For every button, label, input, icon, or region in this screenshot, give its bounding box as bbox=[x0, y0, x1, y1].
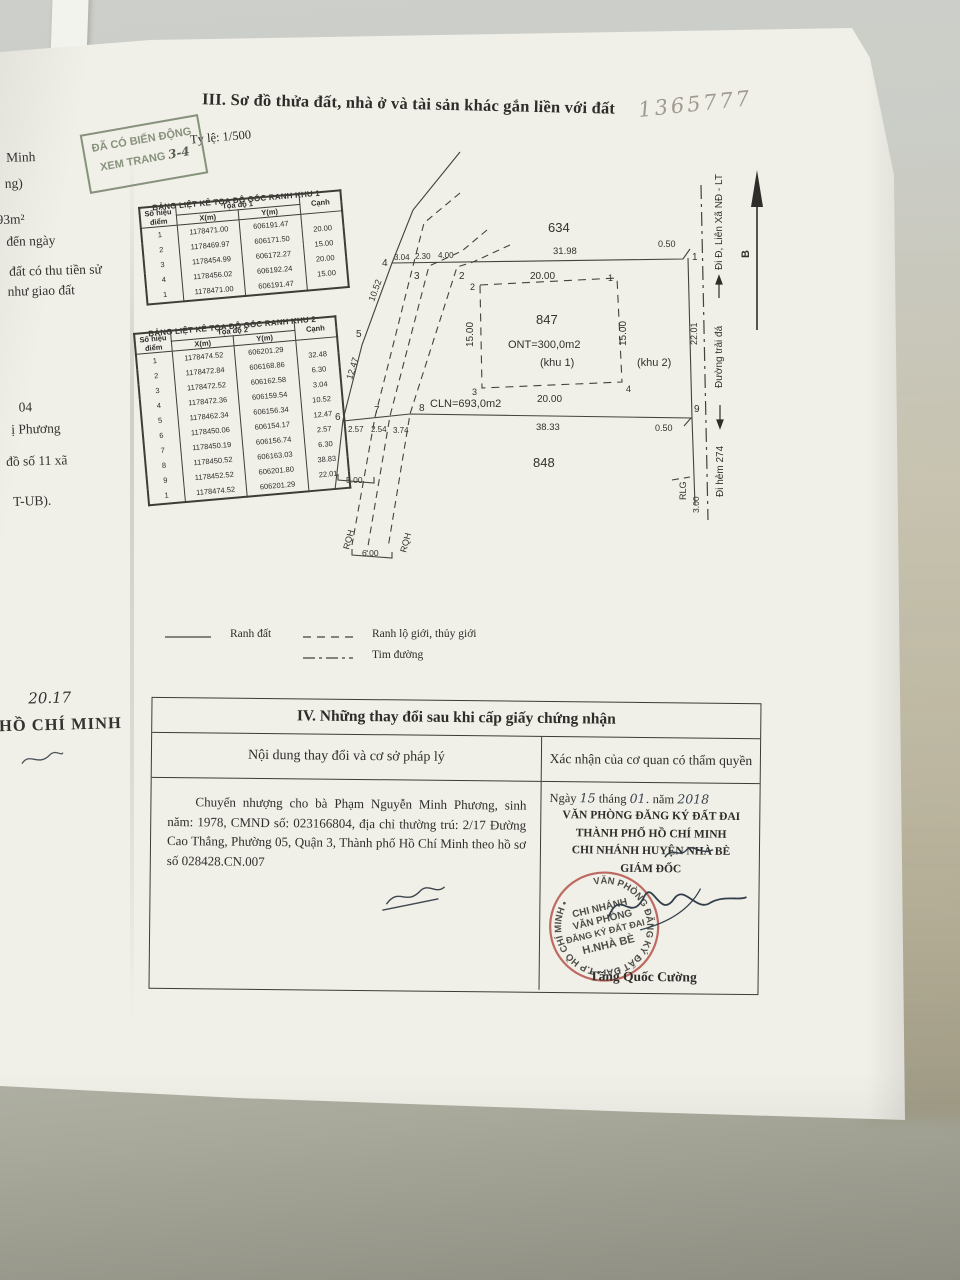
dim-2201: 22.01 bbox=[689, 322, 699, 345]
dim-500: 5.00 bbox=[346, 475, 363, 485]
dim-1052: 10.52 bbox=[366, 278, 383, 303]
margin-fragment: Minh bbox=[6, 149, 36, 166]
margin-fragment: ị Phương bbox=[11, 421, 61, 438]
margin-fragment: 693m² bbox=[0, 211, 25, 228]
dim-400: 4.00 bbox=[438, 251, 454, 260]
dim-050-top: 0.50 bbox=[658, 239, 676, 249]
margin-fragment: 04 bbox=[18, 399, 32, 415]
date-line: Ngày 15 tháng 01. năm 2018 bbox=[549, 790, 753, 808]
inner-point-2: 2 bbox=[470, 282, 475, 292]
inner-plot-dashed-rect bbox=[480, 278, 622, 388]
legend-dashed-line bbox=[303, 634, 353, 640]
khu2-label: (khu 2) bbox=[637, 357, 671, 369]
office-line1: VĂN PHÒNG ĐĂNG KÝ ĐẤT ĐAI bbox=[549, 808, 753, 826]
inner-point-1: 1 bbox=[608, 273, 613, 283]
change-entry-cell: Chuyển nhượng cho bà Phạm Nguyễn Minh Ph… bbox=[150, 778, 541, 990]
dim-15-left: 15.00 bbox=[465, 322, 476, 347]
section4-changes-table: IV. Những thay đổi sau khi cấp giấy chứn… bbox=[148, 697, 761, 995]
road-corridor-dashed-lines bbox=[352, 193, 690, 552]
legend-dashdot-line bbox=[303, 655, 353, 661]
paper-crease bbox=[130, 150, 134, 1020]
parcel-848: 848 bbox=[533, 455, 555, 470]
dim-20-top: 20.00 bbox=[530, 271, 555, 282]
road-hem274-label: Đi hẻm 274 bbox=[715, 445, 726, 497]
section4-header-row: Nội dung thay đổi và cơ sở pháp lý Xác n… bbox=[152, 733, 760, 784]
margin-fragment: T-UB). bbox=[13, 493, 52, 510]
ont-area-label: ONT=300,0m2 bbox=[508, 339, 580, 351]
signer-name: Tăng Quốc Cường bbox=[590, 968, 697, 985]
point-6: 6 bbox=[335, 412, 341, 423]
coordinate-table-khu1: Số hiệu điểm Tọa độ 1 Cạnh X(m) Y(m) 111… bbox=[138, 189, 350, 305]
dim-20-bottom: 20.00 bbox=[537, 394, 562, 405]
rlg-label: RLG bbox=[678, 481, 688, 500]
dim-304: 3.04 bbox=[394, 253, 410, 262]
road-centerline bbox=[701, 185, 708, 520]
margin-signature-squiggle bbox=[20, 747, 65, 770]
margin-fragment: đồ số 11 xã bbox=[6, 452, 68, 470]
handwritten-day: 15 bbox=[580, 790, 596, 805]
legend: Ranh đất Ranh lộ giới, thủy giới Tim đườ… bbox=[160, 628, 620, 674]
giamdoc-initial-signature bbox=[663, 843, 723, 864]
point-3: 3 bbox=[414, 271, 420, 282]
road-lienxa-label: Đi Đ, Liên Xã NĐ - LT bbox=[714, 174, 725, 270]
handwritten-year: 2018 bbox=[677, 791, 709, 806]
dim-600: 6.00 bbox=[362, 548, 379, 558]
dim-374: 3.74 bbox=[393, 426, 409, 435]
road-traida-label: Đường trải đá bbox=[714, 325, 725, 388]
margin-city-fragment: HỒ CHÍ MINH bbox=[0, 713, 122, 736]
dim-15-right: 15.00 bbox=[618, 321, 629, 346]
photo-background: III. Sơ đồ thửa đất, nhà ở và tài sản kh… bbox=[0, 0, 960, 1280]
north-arrow-icon: B bbox=[740, 170, 763, 330]
khu1-label: (khu 1) bbox=[540, 357, 574, 369]
parcel-634: 634 bbox=[548, 220, 570, 235]
office-line2: THÀNH PHỐ HỒ CHÍ MINH bbox=[549, 826, 753, 844]
authority-cell: Ngày 15 tháng 01. năm 2018 VĂN PHÒNG ĐĂN… bbox=[538, 782, 759, 992]
director-signature bbox=[600, 878, 751, 940]
margin-handwritten-year: 20.17 bbox=[28, 688, 71, 707]
parcel-847: 847 bbox=[536, 312, 558, 327]
boundary-lines bbox=[335, 152, 695, 558]
handwritten-page-ref: 3-4 bbox=[167, 144, 191, 162]
point-2: 2 bbox=[459, 271, 465, 282]
rqh-label-1: RQH bbox=[341, 529, 356, 551]
cln-area-label: CLN=693,0m2 bbox=[430, 398, 501, 410]
legend-tim-duong: Tim đường bbox=[372, 649, 423, 661]
dim-050-bottom: 0.50 bbox=[655, 423, 673, 433]
margin-fragment: đến ngày bbox=[6, 233, 56, 250]
entry-signature-squiggle bbox=[380, 880, 450, 915]
point-4: 4 bbox=[382, 258, 388, 269]
point-9: 9 bbox=[694, 404, 700, 415]
inner-point-3: 3 bbox=[472, 387, 477, 397]
legend-ranh-dat: Ranh đất bbox=[230, 628, 271, 640]
margin-fragment: đất có thu tiền sử bbox=[9, 261, 102, 279]
margin-fragment: ng) bbox=[5, 175, 23, 191]
transfer-entry-text: Chuyển nhượng cho bà Phạm Nguyễn Minh Ph… bbox=[167, 792, 527, 874]
rqh-label-2: RQH bbox=[398, 532, 413, 554]
land-plot-diagram: B 634 847 848 ONT=300,0m2 (khu 1) (khu 2… bbox=[330, 140, 790, 585]
inner-point-4: 4 bbox=[626, 384, 631, 394]
dim-257: 2.57 bbox=[348, 425, 364, 434]
coordinate-table-khu2: Số hiệu điểm Tọa độ 2 Cạnh X(m) Y(m) 111… bbox=[133, 315, 351, 506]
col-change-content: Nội dung thay đổi và cơ sở pháp lý bbox=[152, 733, 541, 781]
dim-1247: 12.47 bbox=[344, 356, 360, 380]
dim-3833: 38.33 bbox=[536, 422, 560, 433]
margin-fragment: như giao đất bbox=[7, 282, 75, 300]
point-1: 1 bbox=[692, 252, 698, 263]
dim-3198: 31.98 bbox=[553, 246, 577, 257]
col-authority-confirm: Xác nhận của cơ quan có thẩm quyền bbox=[541, 737, 760, 783]
svg-text:B: B bbox=[740, 250, 752, 258]
dim-230: 2.30 bbox=[415, 252, 431, 261]
dim-300: 3.00 bbox=[691, 496, 701, 513]
legend-ranh-lo-gioi: Ranh lộ giới, thủy giới bbox=[372, 628, 476, 640]
dim-254: 2.54 bbox=[371, 425, 387, 434]
legend-solid-line bbox=[165, 634, 211, 640]
document-page: III. Sơ đồ thửa đất, nhà ở và tài sản kh… bbox=[0, 0, 912, 1140]
point-8: 8 bbox=[419, 403, 425, 414]
point-5: 5 bbox=[356, 329, 362, 340]
handwritten-month: 01. bbox=[630, 791, 650, 806]
section4-body-row: Chuyển nhượng cho bà Phạm Nguyễn Minh Ph… bbox=[150, 778, 760, 992]
point-7: 7 bbox=[374, 405, 380, 416]
